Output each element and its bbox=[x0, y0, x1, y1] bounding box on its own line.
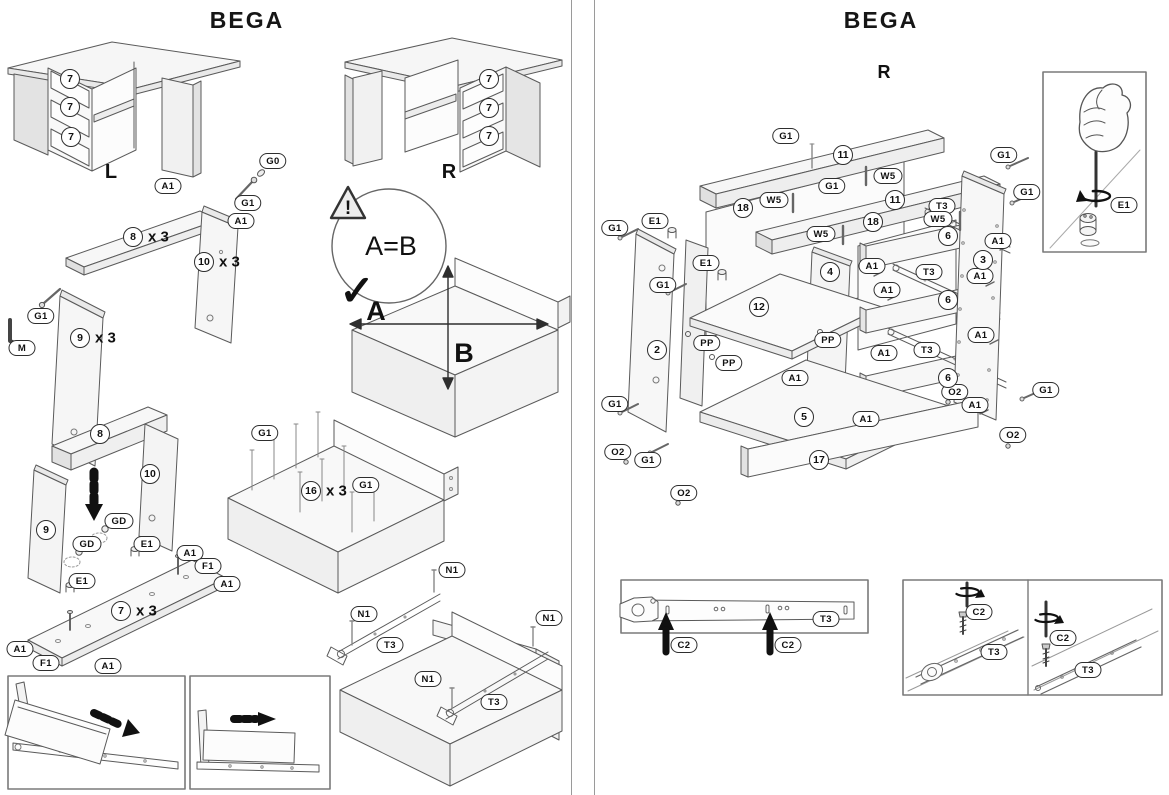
part-label-g1: G1 bbox=[649, 277, 676, 293]
part-label-c2: C2 bbox=[966, 604, 993, 620]
part-badge-6: 6 bbox=[938, 290, 958, 310]
part-label-g1: G1 bbox=[601, 396, 628, 412]
part-label-a1: A1 bbox=[967, 268, 994, 284]
part-label-a1: A1 bbox=[874, 282, 901, 298]
part-badge-4: 4 bbox=[820, 262, 840, 282]
part-label-w5: W5 bbox=[873, 168, 902, 184]
part-label-a1: A1 bbox=[985, 233, 1012, 249]
part-label-g1: G1 bbox=[634, 452, 661, 468]
part-label-a1: A1 bbox=[871, 345, 898, 361]
part-label-w5: W5 bbox=[923, 211, 952, 227]
part-label-t3: T3 bbox=[916, 264, 943, 280]
part-label-g1: G1 bbox=[772, 128, 799, 144]
part-badge-12: 12 bbox=[749, 297, 769, 317]
part-label-w5: W5 bbox=[759, 192, 788, 208]
part-label-w5: W5 bbox=[806, 226, 835, 242]
assembly-instruction-sheet: { "document_type": "furniture-assembly-i… bbox=[0, 0, 1169, 795]
part-label-g1: G1 bbox=[1032, 382, 1059, 398]
part-label-o2: O2 bbox=[604, 444, 631, 460]
part-label-g1: G1 bbox=[1013, 184, 1040, 200]
part-badge-11: 11 bbox=[833, 145, 853, 165]
part-label-pp: PP bbox=[693, 335, 720, 351]
part-badge-5: 5 bbox=[794, 407, 814, 427]
part-label-t3: T3 bbox=[981, 644, 1008, 660]
part-label-a1: A1 bbox=[962, 397, 989, 413]
part-label-g1: G1 bbox=[601, 220, 628, 236]
part-label-a1: A1 bbox=[968, 327, 995, 343]
part-badge-18: 18 bbox=[863, 212, 883, 232]
part-label-e1: E1 bbox=[693, 255, 720, 271]
part-label-pp: PP bbox=[814, 332, 841, 348]
right-page-part-labels: G1G1W5G1W5T3W5G1E1G1W5A1E1A1T3A1G1A1A1PP… bbox=[0, 0, 1169, 795]
part-label-e1: E1 bbox=[1111, 197, 1138, 213]
part-label-e1: E1 bbox=[642, 213, 669, 229]
part-label-t3: T3 bbox=[914, 342, 941, 358]
part-label-t3: T3 bbox=[813, 611, 840, 627]
part-label-c2: C2 bbox=[1050, 630, 1077, 646]
part-label-c2: C2 bbox=[671, 637, 698, 653]
part-label-o2: O2 bbox=[670, 485, 697, 501]
part-badge-3: 3 bbox=[973, 250, 993, 270]
part-label-t3: T3 bbox=[1075, 662, 1102, 678]
part-label-g1: G1 bbox=[818, 178, 845, 194]
part-label-c2: C2 bbox=[775, 637, 802, 653]
part-label-pp: PP bbox=[715, 355, 742, 371]
part-badge-6: 6 bbox=[938, 368, 958, 388]
part-label-a1: A1 bbox=[859, 258, 886, 274]
part-badge-17: 17 bbox=[809, 450, 829, 470]
part-label-g1: G1 bbox=[990, 147, 1017, 163]
part-label-a1: A1 bbox=[853, 411, 880, 427]
part-label-o2: O2 bbox=[999, 427, 1026, 443]
part-badge-11: 11 bbox=[885, 190, 905, 210]
part-label-a1: A1 bbox=[782, 370, 809, 386]
part-badge-2: 2 bbox=[647, 340, 667, 360]
part-badge-6: 6 bbox=[938, 226, 958, 246]
part-badge-18: 18 bbox=[733, 198, 753, 218]
